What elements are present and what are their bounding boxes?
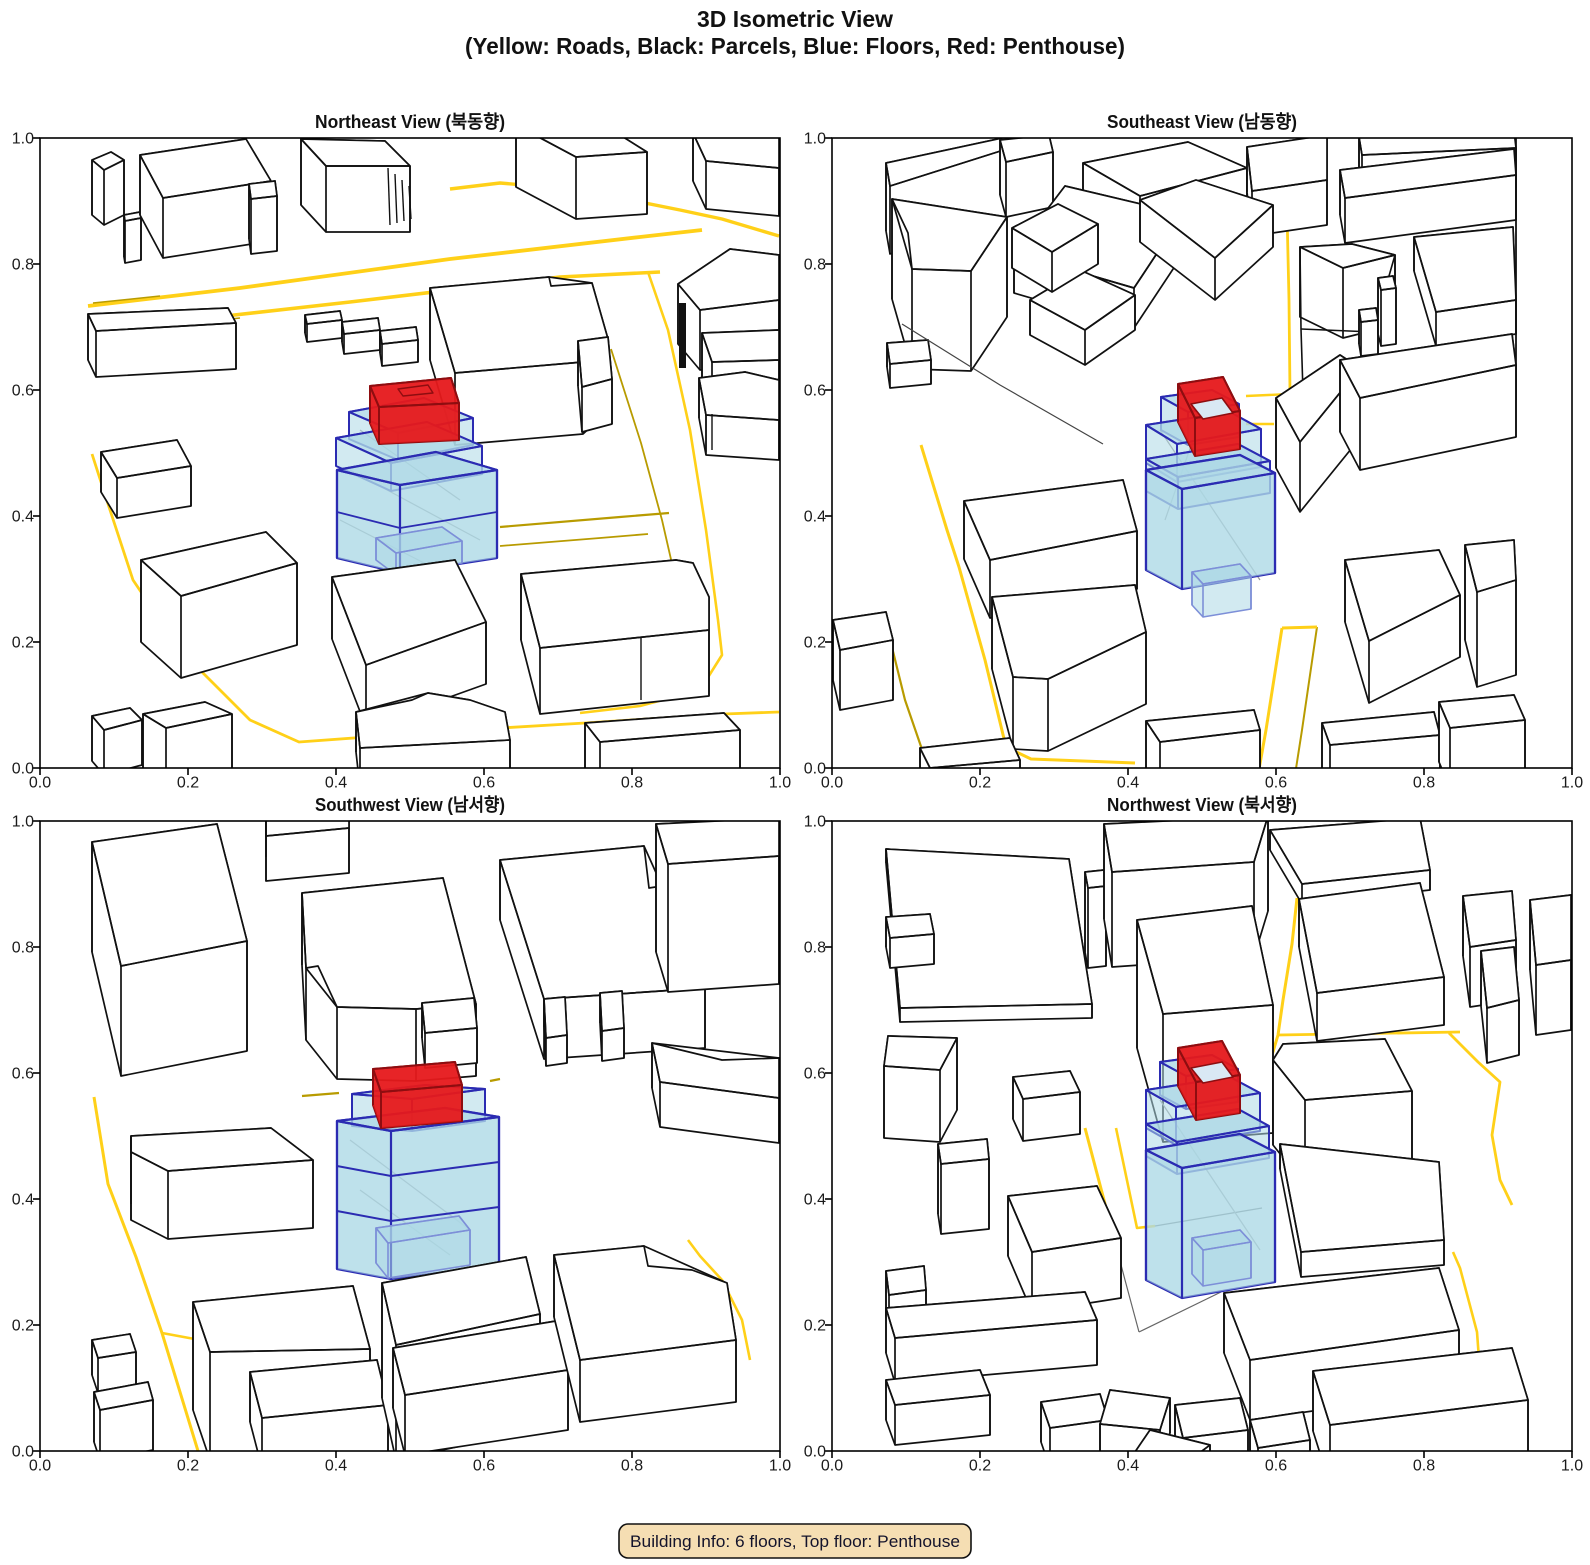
svg-text:0.6: 0.6 xyxy=(804,383,826,400)
svg-text:0.6: 0.6 xyxy=(12,1066,34,1083)
svg-text:0.4: 0.4 xyxy=(12,509,34,526)
svg-text:1.0: 1.0 xyxy=(804,814,826,831)
svg-text:Southeast View (남동향): Southeast View (남동향) xyxy=(1107,112,1297,132)
svg-text:Southwest View (남서향): Southwest View (남서향) xyxy=(315,795,505,815)
svg-text:Northwest View (북서향): Northwest View (북서향) xyxy=(1107,795,1297,815)
svg-text:0.2: 0.2 xyxy=(177,1458,199,1475)
svg-text:0.6: 0.6 xyxy=(473,775,495,792)
svg-text:0.4: 0.4 xyxy=(804,1192,826,1209)
svg-text:0.2: 0.2 xyxy=(969,775,991,792)
svg-text:1.0: 1.0 xyxy=(12,814,34,831)
svg-text:0.8: 0.8 xyxy=(621,775,643,792)
svg-text:0.8: 0.8 xyxy=(621,1458,643,1475)
svg-text:0.6: 0.6 xyxy=(12,383,34,400)
svg-text:0.4: 0.4 xyxy=(325,1458,347,1475)
svg-text:0.6: 0.6 xyxy=(1265,1458,1287,1475)
svg-text:1.0: 1.0 xyxy=(769,1458,791,1475)
svg-text:1.0: 1.0 xyxy=(769,775,791,792)
svg-text:(Yellow: Roads, Black: Parcels: (Yellow: Roads, Black: Parcels, Blue: Fl… xyxy=(465,33,1125,59)
svg-text:0.8: 0.8 xyxy=(804,257,826,274)
svg-text:0.4: 0.4 xyxy=(804,509,826,526)
svg-text:0.4: 0.4 xyxy=(325,775,347,792)
svg-text:1.0: 1.0 xyxy=(1561,775,1583,792)
svg-text:0.4: 0.4 xyxy=(1117,775,1139,792)
svg-text:Building Info: 6 floors, Top f: Building Info: 6 floors, Top floor: Pent… xyxy=(630,1533,960,1551)
svg-text:0.0: 0.0 xyxy=(804,1444,826,1461)
svg-text:0.2: 0.2 xyxy=(12,1318,34,1335)
svg-text:0.0: 0.0 xyxy=(12,1444,34,1461)
svg-text:0.6: 0.6 xyxy=(1265,775,1287,792)
svg-text:0.2: 0.2 xyxy=(804,1318,826,1335)
svg-text:1.0: 1.0 xyxy=(1561,1458,1583,1475)
svg-text:0.2: 0.2 xyxy=(969,1458,991,1475)
svg-text:0.6: 0.6 xyxy=(473,1458,495,1475)
svg-text:0.2: 0.2 xyxy=(12,635,34,652)
svg-text:0.6: 0.6 xyxy=(804,1066,826,1083)
svg-text:0.8: 0.8 xyxy=(1413,1458,1435,1475)
svg-text:1.0: 1.0 xyxy=(12,131,34,148)
svg-text:0.2: 0.2 xyxy=(177,775,199,792)
svg-text:3D Isometric View: 3D Isometric View xyxy=(697,6,893,32)
svg-text:Northeast View (북동향): Northeast View (북동향) xyxy=(315,112,505,132)
svg-text:0.8: 0.8 xyxy=(12,940,34,957)
svg-text:0.8: 0.8 xyxy=(12,257,34,274)
svg-text:0.4: 0.4 xyxy=(12,1192,34,1209)
svg-text:0.8: 0.8 xyxy=(804,940,826,957)
svg-text:0.2: 0.2 xyxy=(804,635,826,652)
svg-text:1.0: 1.0 xyxy=(804,131,826,148)
svg-text:0.0: 0.0 xyxy=(12,761,34,778)
svg-text:0.8: 0.8 xyxy=(1413,775,1435,792)
svg-text:0.4: 0.4 xyxy=(1117,1458,1139,1475)
svg-text:0.0: 0.0 xyxy=(804,761,826,778)
